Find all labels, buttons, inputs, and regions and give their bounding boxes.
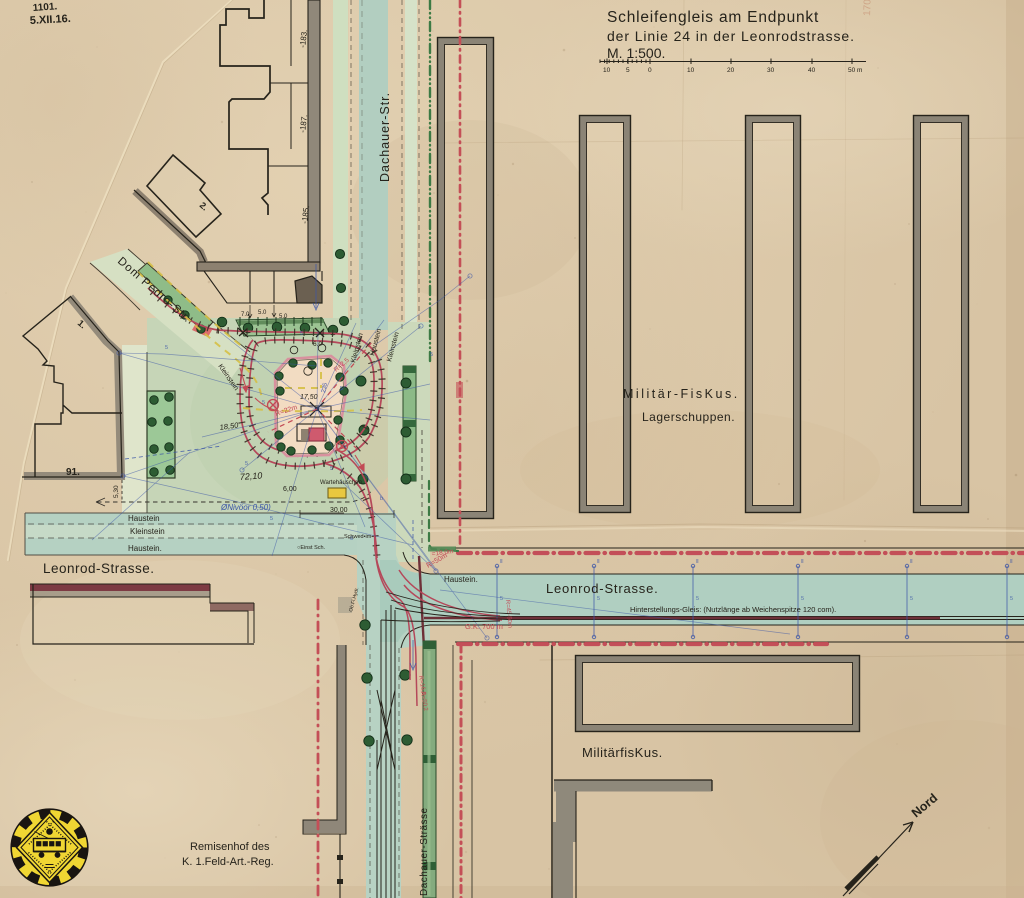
- svg-text:5: 5: [245, 461, 248, 467]
- svg-text:5.XII.16.: 5.XII.16.: [30, 13, 72, 27]
- svg-text:Haustein.: Haustein.: [444, 575, 478, 584]
- svg-text:Ⅱ: Ⅱ: [500, 559, 503, 565]
- svg-text:6,00: 6,00: [283, 486, 297, 493]
- svg-text:5: 5: [330, 466, 333, 472]
- svg-text:5: 5: [696, 596, 699, 602]
- svg-text:Hinterstellungs-Gleis: (Nutzlä: Hinterstellungs-Gleis: (Nutzlänge ab Wei…: [630, 605, 836, 614]
- svg-text:10: 10: [687, 67, 695, 74]
- svg-text:5.0: 5.0: [258, 310, 267, 316]
- svg-text:91.: 91.: [66, 467, 80, 478]
- svg-text:40: 40: [808, 67, 816, 74]
- svg-text:5: 5: [430, 352, 433, 358]
- svg-text:Ⅱ: Ⅱ: [910, 559, 913, 565]
- svg-text:5: 5: [597, 596, 600, 602]
- svg-text:72,10: 72,10: [239, 470, 262, 482]
- svg-text:1701: 1701: [862, 0, 874, 16]
- svg-text:5: 5: [1010, 596, 1013, 602]
- svg-text:Lagerschuppen.: Lagerschuppen.: [642, 410, 735, 424]
- svg-text:Militär-FisKus.: Militär-FisKus.: [623, 387, 740, 401]
- svg-text:5,30: 5,30: [113, 485, 120, 498]
- svg-text:Kleinstein: Kleinstein: [130, 527, 165, 536]
- svg-text:Ⅱ: Ⅱ: [1010, 559, 1013, 565]
- svg-text:17,50: 17,50: [300, 394, 318, 401]
- svg-text:der Linie 24 in der Leonrodstr: der Linie 24 in der Leonrodstrasse.: [607, 28, 855, 44]
- svg-text:Dachauer-Strässe: Dachauer-Strässe: [419, 807, 430, 896]
- svg-text:5: 5: [300, 331, 303, 337]
- svg-text:0: 0: [648, 67, 652, 74]
- svg-text:5.0: 5.0: [279, 314, 288, 320]
- svg-text:Ⅱ: Ⅱ: [597, 559, 600, 565]
- svg-text:Leonrod-Strasse.: Leonrod-Strasse.: [546, 581, 659, 596]
- svg-text:K. 1.Feld-Art.-Reg.: K. 1.Feld-Art.-Reg.: [182, 856, 274, 868]
- svg-text:30: 30: [767, 67, 775, 74]
- svg-text:Leonrod-Strasse.: Leonrod-Strasse.: [43, 561, 155, 576]
- svg-text:Schleifengleis am Endpunkt: Schleifengleis am Endpunkt: [607, 9, 819, 26]
- svg-text:Dachauer-Str.: Dachauer-Str.: [378, 92, 392, 182]
- svg-text:50 m: 50 m: [848, 67, 862, 74]
- svg-text:1101.: 1101.: [32, 1, 57, 14]
- svg-text:5: 5: [270, 516, 273, 522]
- svg-text:5: 5: [165, 345, 168, 351]
- svg-text:Ⅱ: Ⅱ: [696, 559, 699, 565]
- svg-text:20: 20: [727, 67, 735, 74]
- svg-text:5: 5: [500, 596, 503, 602]
- svg-text:Remisenhof des: Remisenhof des: [190, 841, 270, 853]
- svg-text:6.0: 6.0: [313, 341, 322, 348]
- svg-text:○Einst Sch.: ○Einst Sch.: [297, 545, 326, 551]
- svg-text:Wartehäuschen: Wartehäuschen: [320, 480, 362, 486]
- svg-text:Ⅱ: Ⅱ: [801, 559, 804, 565]
- svg-text:5: 5: [801, 596, 804, 602]
- svg-text:Haustein: Haustein: [128, 514, 160, 523]
- svg-text:ØNivöor 0,50): ØNivöor 0,50): [220, 503, 271, 512]
- svg-text:5: 5: [910, 596, 913, 602]
- svg-text:5: 5: [626, 67, 630, 74]
- svg-text:M. 1:500.: M. 1:500.: [607, 45, 665, 61]
- svg-text:30,00: 30,00: [330, 507, 348, 514]
- svg-text:Schwed•im: Schwed•im: [344, 534, 372, 540]
- svg-text:10: 10: [603, 67, 611, 74]
- svg-text:MilitärfisKus.: MilitärfisKus.: [582, 745, 663, 760]
- svg-text:b: b: [380, 496, 383, 502]
- svg-text:G.K. 700 m: G.K. 700 m: [465, 622, 503, 631]
- svg-text:Haustein.: Haustein.: [128, 544, 162, 553]
- svg-text:5: 5: [340, 386, 343, 392]
